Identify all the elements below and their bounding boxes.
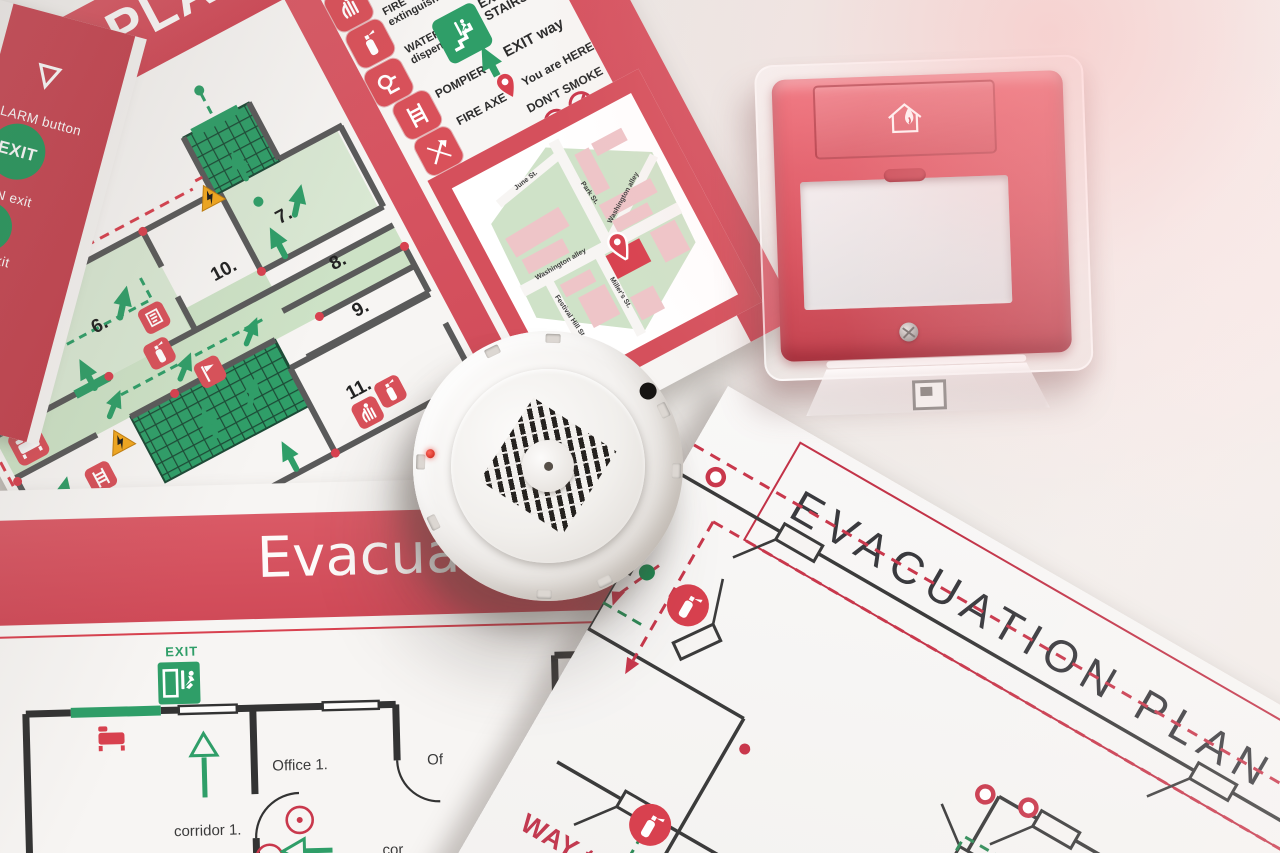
legend-label-exit-way: EXIT way — [501, 16, 567, 61]
room-number: 10. — [207, 255, 240, 286]
detector-notch — [416, 454, 426, 469]
detector-notch — [672, 463, 682, 478]
corridor1-label: corridor 1. — [174, 821, 242, 840]
fire-alarm-call-point — [754, 54, 1091, 420]
call-point-glass-window — [800, 175, 1012, 310]
detector-notch — [536, 590, 551, 600]
legend-label-exit-stairs: EXIT STAIRS — [476, 0, 533, 24]
plan2-labels: Office 1. Of corridor 1. cor — [172, 751, 446, 853]
smoke-detector — [388, 306, 708, 626]
call-point-clip — [912, 379, 947, 410]
office1-label: Office 1. — [272, 756, 328, 774]
plan2-exit-sign-icon — [158, 662, 201, 705]
call-point-label-plate — [813, 79, 997, 159]
alarm-down-arrow-icon — [31, 62, 65, 94]
drawing-green-routes — [489, 594, 1266, 853]
plan2-exit-label: EXIT — [165, 644, 198, 660]
call-point-top-tab — [884, 168, 926, 182]
exit-badge-label: EXIT — [0, 137, 39, 167]
detector-notch — [545, 334, 560, 344]
plan2-exit-doorsill — [71, 706, 161, 718]
house-fire-icon — [880, 99, 929, 141]
corridor2-label: cor — [382, 841, 403, 853]
drawing-red-dot — [737, 741, 752, 756]
main-exit-label: MAIN exit — [0, 180, 34, 211]
plan2-sofa-icon — [98, 726, 125, 751]
photo-scene: TION PLAN — [0, 0, 1280, 853]
office2-label: Of — [427, 751, 444, 768]
